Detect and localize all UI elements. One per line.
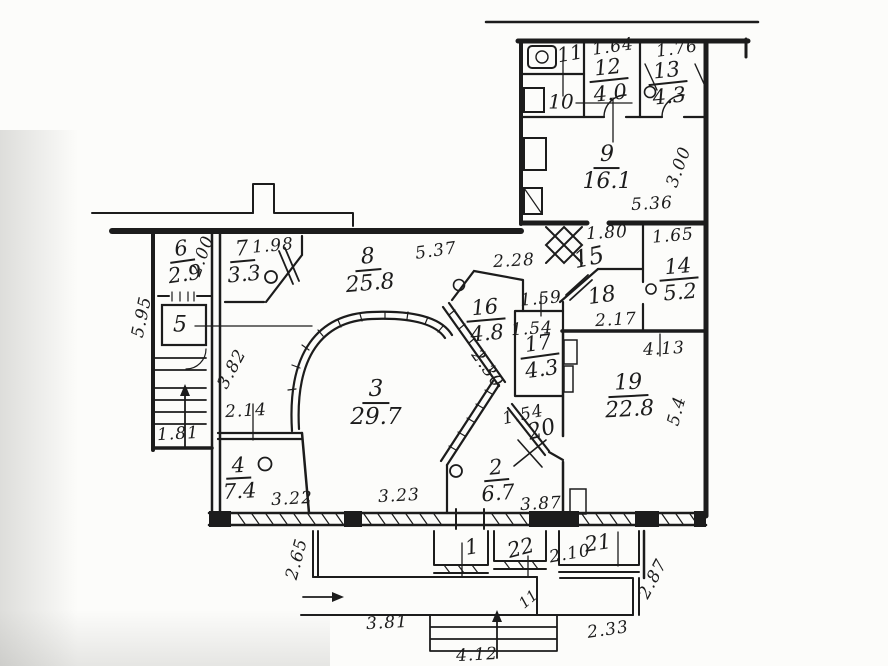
dimension-label: 2.10: [548, 541, 593, 568]
room-label-19: 1922.8: [603, 371, 655, 423]
dimension-label: 5.36: [631, 193, 674, 215]
room-label-9: 916.1: [583, 144, 632, 194]
dimension-label: 3.87: [520, 493, 563, 515]
room-label-11: 11: [512, 584, 546, 616]
dimension-label: 2.28: [493, 250, 536, 272]
room-label-4: 47.4: [221, 454, 257, 503]
dimension-label: 3.22: [271, 488, 314, 510]
dimension-label: 1.59: [519, 287, 562, 311]
dimension-label: 2.17: [595, 309, 638, 331]
room-label-3: 329.7: [350, 378, 401, 430]
dimension-label: 3.23: [378, 485, 421, 507]
dimension-label: 5.95: [128, 294, 156, 339]
dimension-label: 4.13: [643, 338, 686, 360]
dimension-label: 1.81: [157, 423, 200, 445]
floor-plan: 1110124.0134.3916.115145.218164.8174.382…: [0, 0, 888, 666]
dimension-label: 1.98: [251, 234, 294, 258]
room-label-14: 145.2: [658, 254, 701, 305]
room-label-1: 1: [458, 535, 487, 561]
dimension-label: 2.30: [467, 346, 507, 392]
room-label-13: 134.3: [646, 58, 690, 110]
dimension-label: 2.87: [634, 556, 671, 602]
dimension-label: 1.64: [591, 34, 635, 60]
room-label-11: 11: [550, 40, 591, 68]
dimension-label: 1.54: [511, 318, 554, 340]
dimension-label: 5.4: [663, 394, 690, 428]
room-label-22: 22: [499, 533, 542, 565]
room-label-2: 26.7: [478, 456, 515, 507]
room-label-10: 10: [542, 91, 579, 112]
room-label-18: 18: [581, 283, 624, 312]
dimension-label: 3.82: [213, 346, 250, 392]
labels-layer: 1110124.0134.3916.115145.218164.8174.382…: [0, 0, 888, 666]
dimension-label: 5.37: [414, 238, 458, 264]
dimension-label: 1.76: [655, 36, 699, 62]
dimension-label: 4.12: [456, 644, 499, 666]
room-label-8: 825.8: [342, 244, 395, 298]
room-label-15: 15: [566, 241, 613, 275]
room-label-5: 5: [167, 314, 193, 337]
dimension-label: 2.14: [225, 400, 268, 422]
dimension-label: 3.81: [366, 612, 409, 634]
dimension-label: 2.65: [282, 536, 312, 582]
room-label-16: 164.8: [465, 295, 508, 346]
dimension-label: 1.65: [651, 224, 694, 248]
dimension-label: 2.33: [586, 617, 630, 643]
dimension-label: 1.80: [586, 222, 629, 244]
dimension-label: 3.00: [662, 144, 695, 190]
room-label-12: 124.0: [587, 55, 631, 107]
